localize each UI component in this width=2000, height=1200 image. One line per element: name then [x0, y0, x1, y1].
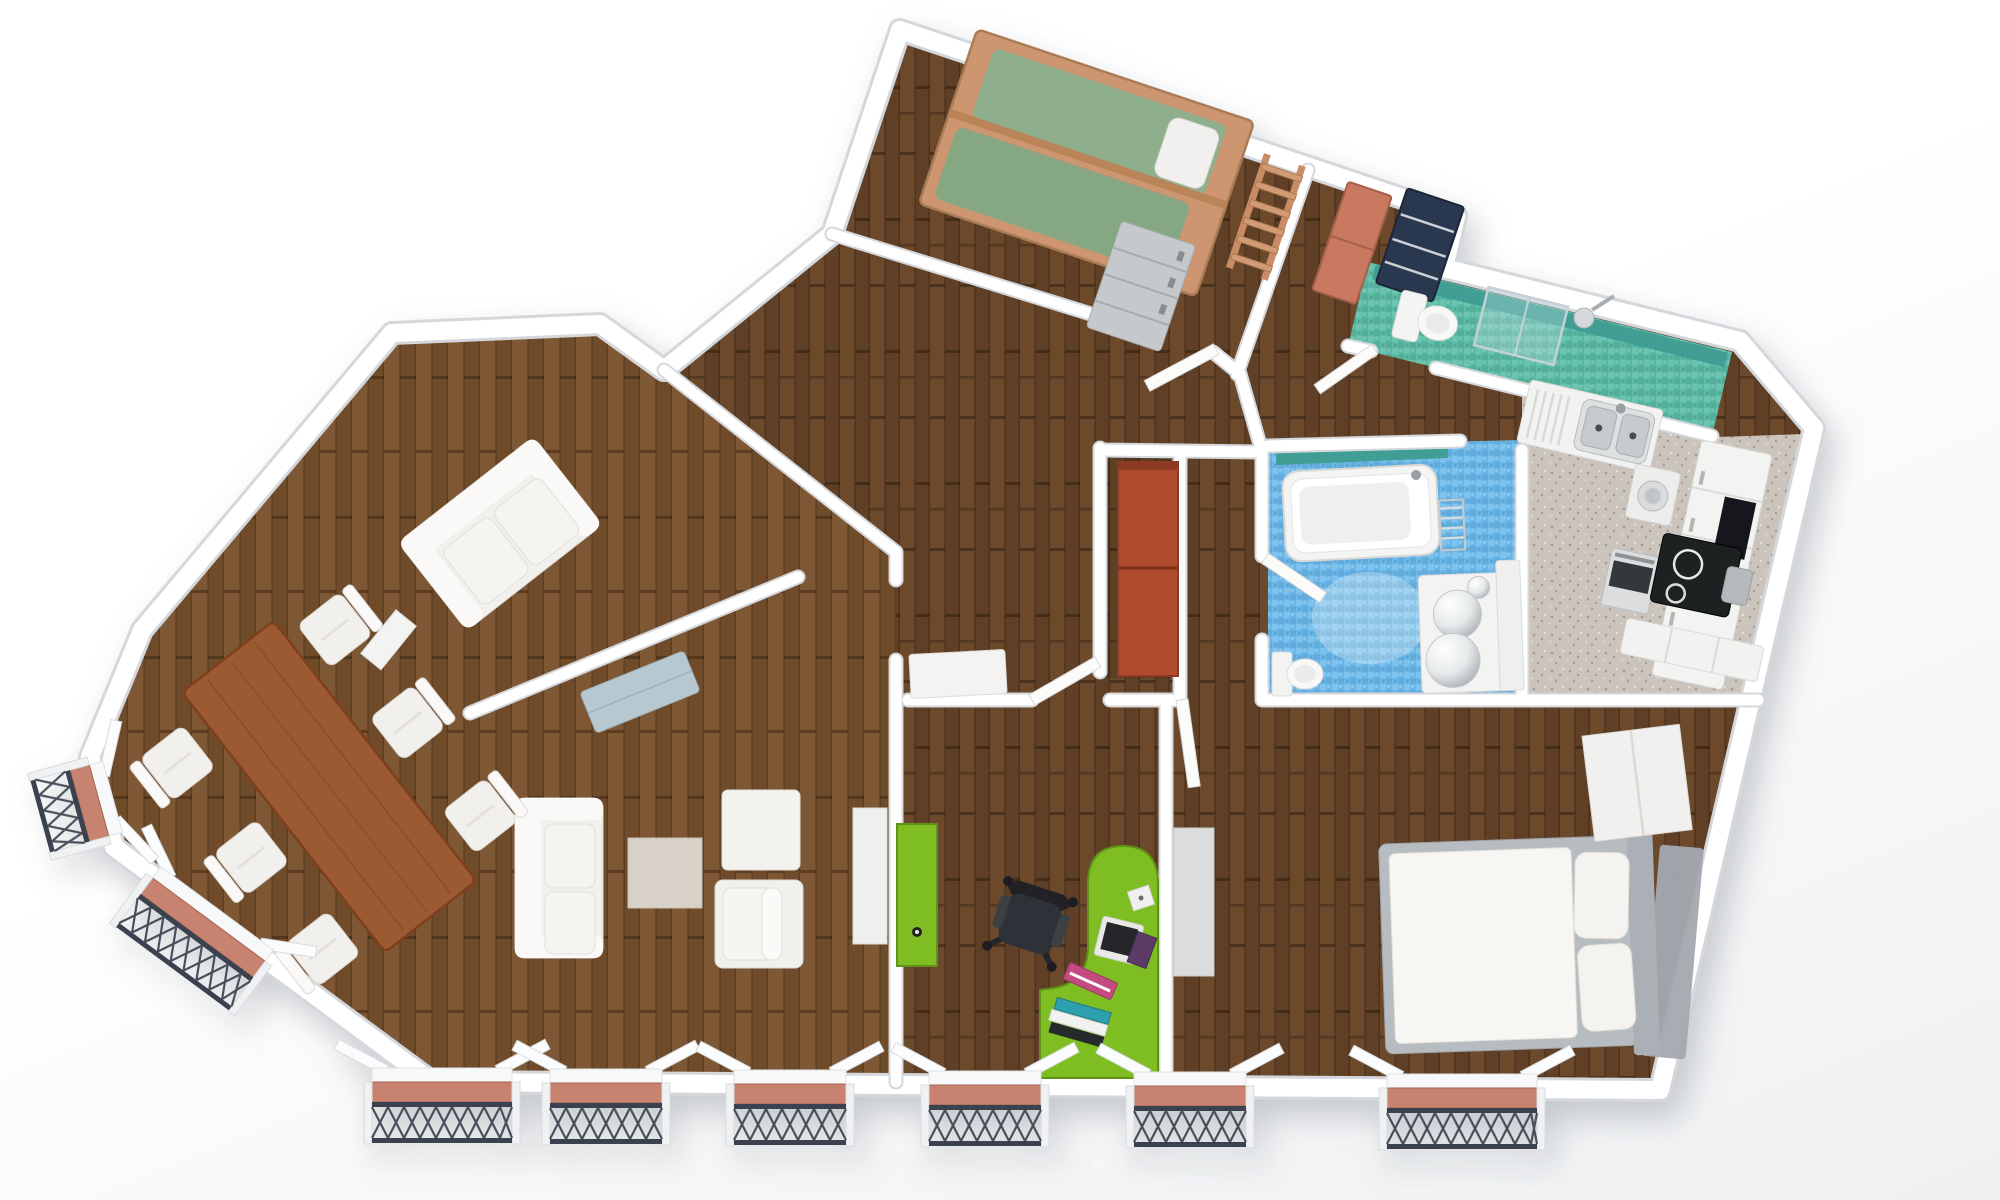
railing-bar: [1387, 1108, 1537, 1113]
window-sill: [1134, 1072, 1246, 1086]
armchair: [715, 880, 803, 968]
balcony-post: [726, 1084, 734, 1146]
sofa-back: [515, 798, 541, 958]
gray-rug: [1174, 828, 1214, 976]
balcony-post: [1537, 1088, 1545, 1150]
balcony-post: [364, 1082, 372, 1144]
balcony-post: [512, 1082, 520, 1144]
floor-plan-svg: [0, 0, 2000, 1200]
balcony-floor: [734, 1084, 846, 1104]
railing-lattice: [1134, 1111, 1246, 1142]
bathtub: [1282, 464, 1440, 562]
balcony-floor: [372, 1082, 512, 1102]
seat-cushion: [545, 824, 595, 888]
balcony-floor: [929, 1085, 1041, 1105]
railing-bar: [734, 1104, 846, 1109]
railing-bar: [929, 1105, 1041, 1110]
sphere-vanity: [1418, 560, 1524, 693]
coffee-table: [628, 838, 702, 908]
pillow: [1577, 942, 1637, 1032]
window-sill: [929, 1071, 1041, 1085]
pillow: [1574, 852, 1629, 939]
balcony-post: [921, 1085, 929, 1147]
ottoman: [722, 790, 800, 870]
sofa-arm: [515, 798, 603, 820]
bedroom-wardrobe: [1582, 724, 1692, 841]
double-bed: [1378, 819, 1711, 1070]
seat-cushion: [545, 892, 595, 954]
window-sill: [550, 1069, 662, 1083]
railing-bar: [929, 1141, 1041, 1146]
railing-lattice: [1387, 1113, 1537, 1144]
arm-roll: [762, 888, 782, 960]
railing-bar: [734, 1140, 846, 1145]
balcony-post: [1246, 1086, 1254, 1148]
balcony-post: [662, 1083, 670, 1145]
balcony-post: [1126, 1086, 1134, 1148]
railing-bar: [372, 1138, 512, 1143]
railing-bar: [550, 1103, 662, 1108]
railing-bar: [1387, 1144, 1537, 1149]
balcony-floor: [1134, 1086, 1246, 1106]
floor-plan-render: [0, 0, 2000, 1200]
railing-lattice: [372, 1107, 512, 1138]
mattress: [1389, 847, 1578, 1043]
railing-lattice: [929, 1110, 1041, 1141]
railing-bar: [1134, 1142, 1246, 1147]
console-table: [909, 650, 1007, 699]
red-wardrobe: [1118, 462, 1178, 676]
window-sill: [1387, 1074, 1537, 1088]
living-sofa: [515, 798, 603, 958]
window-sill: [734, 1070, 846, 1084]
railing-lattice: [734, 1109, 846, 1140]
apartment: [19, 29, 1814, 1150]
railing-lattice: [550, 1108, 662, 1139]
balcony-floor: [1387, 1088, 1537, 1108]
bathroom-light-spot: [1312, 572, 1428, 664]
railing-bar: [30, 780, 54, 853]
balcony-post: [1041, 1085, 1049, 1147]
balcony-post: [846, 1084, 854, 1146]
railing-bar: [550, 1139, 662, 1144]
vanity-side-panel: [1496, 560, 1525, 691]
green-wardrobe: [897, 824, 937, 966]
balcony-floor: [550, 1083, 662, 1103]
office-white-shelf: [853, 808, 887, 944]
balcony-post: [542, 1083, 550, 1145]
railing-bar: [1134, 1106, 1246, 1111]
railing-bar: [372, 1102, 512, 1107]
balcony-post: [1379, 1088, 1387, 1150]
window-sill: [372, 1068, 512, 1082]
